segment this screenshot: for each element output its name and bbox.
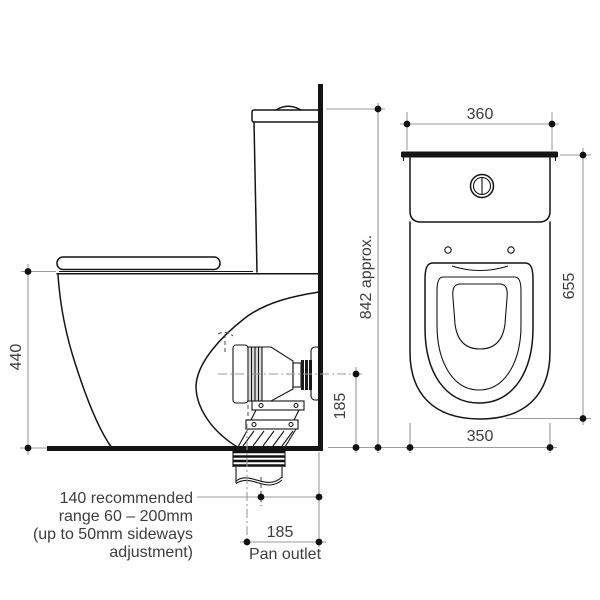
cistern-front	[401, 152, 558, 223]
label-pan-outlet: Pan outlet	[249, 546, 322, 563]
leader-dot	[258, 494, 265, 501]
funnel-hatching	[243, 431, 293, 446]
dim-dot	[25, 268, 32, 275]
dim-dot	[547, 444, 554, 451]
connector-step	[293, 363, 301, 387]
dim-label-seat-height: 440	[8, 344, 25, 371]
seat-side	[57, 257, 319, 274]
seat-lid-side	[57, 257, 220, 270]
trap-assembly	[233, 345, 321, 447]
bowl-water-outline	[453, 284, 507, 349]
dim-label-outlet-height: 185	[332, 393, 349, 420]
pan-front	[410, 222, 550, 419]
dim-pan-width: 350	[407, 423, 554, 453]
dim-dot	[316, 539, 323, 546]
cistern-lid-side	[252, 110, 320, 122]
dim-dot	[25, 445, 32, 452]
clamp-side	[294, 410, 299, 420]
dim-dot	[353, 371, 360, 378]
dim-dot	[244, 539, 251, 546]
pipe-break-line	[236, 477, 282, 482]
dim-dot	[580, 415, 587, 422]
side-elevation	[47, 84, 362, 544]
cistern-side	[252, 106, 320, 272]
note-line-4: adjustment)	[109, 544, 193, 561]
bolt	[252, 423, 256, 427]
connector-collar	[301, 360, 312, 390]
dim-overall-depth: 655	[506, 148, 591, 425]
dim-label-pan-width: 350	[467, 428, 494, 445]
dim-dot	[375, 444, 382, 451]
clamp-side	[251, 410, 256, 420]
cistern-lid-front	[401, 152, 558, 158]
pan-front-curve	[58, 275, 112, 448]
seat-hinge-dot	[508, 247, 514, 253]
front-elevation	[401, 152, 558, 420]
dim-label-overall-height: 842 approx.	[358, 235, 375, 320]
dim-label-overall-depth: 655	[561, 273, 578, 300]
clamp-plate-lower	[246, 420, 298, 429]
dim-dot	[353, 444, 360, 451]
note-line-3: (up to 50mm sideways	[33, 526, 193, 543]
leader-dot	[316, 494, 323, 501]
dim-dot	[404, 121, 411, 128]
waste-pipe	[233, 449, 285, 485]
cistern-front-edge	[254, 122, 257, 272]
dim-pan-outlet: 185 Pan outlet	[240, 452, 326, 563]
bolt	[259, 404, 263, 408]
dim-outlet-height: 185	[332, 367, 359, 453]
dim-cistern-width: 360	[400, 106, 559, 150]
seat-inner-ring	[437, 277, 521, 390]
dim-seat-height: 440	[8, 264, 56, 455]
seat-hinge-dot	[445, 247, 451, 253]
dim-dot	[580, 152, 587, 159]
note-line-1: 140 recommended	[60, 490, 193, 507]
bolt	[289, 423, 293, 427]
dim-dot	[407, 444, 414, 451]
technical-drawing-toilet-suite: 440 842 approx. 185 360	[0, 0, 600, 600]
bolt	[294, 404, 298, 408]
pan-side	[58, 275, 319, 448]
dim-label-cistern-width: 360	[467, 106, 494, 123]
dim-dot	[549, 121, 556, 128]
bowl-back-arc	[452, 266, 508, 271]
flush-button	[471, 175, 494, 198]
cistern-body-front	[410, 158, 550, 222]
dimension-diagram-svg: 440 842 approx. 185 360	[0, 0, 600, 600]
dim-dot	[375, 106, 382, 113]
clamp-plate-upper	[252, 401, 304, 410]
note-line-2: range 60 – 200mm	[59, 508, 193, 525]
dim-label-pan-outlet: 185	[267, 524, 294, 541]
